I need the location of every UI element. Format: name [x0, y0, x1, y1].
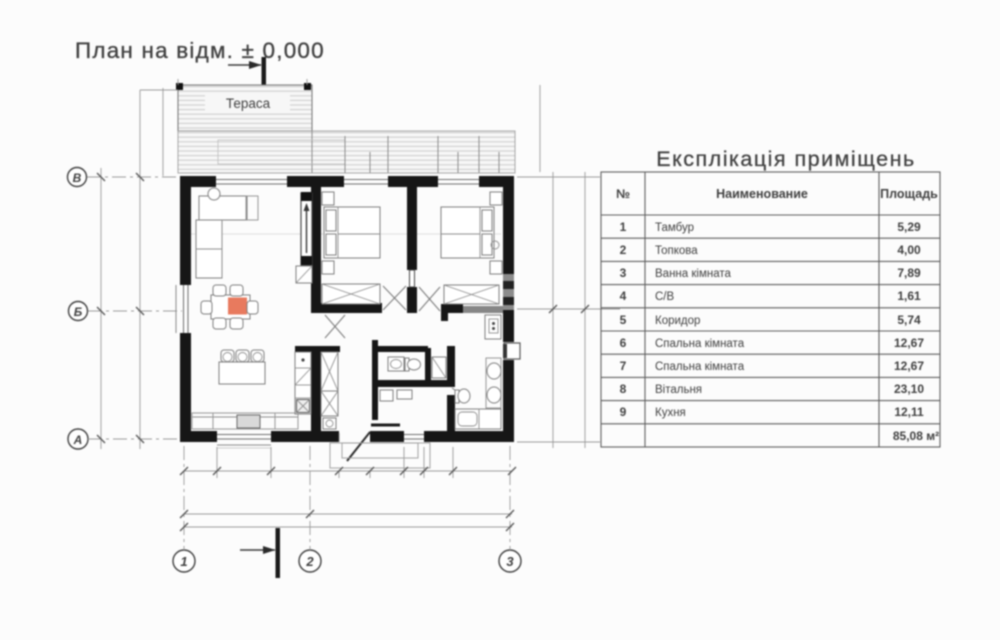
svg-text:Спальна кімната: Спальна кімната	[655, 338, 745, 350]
svg-text:7: 7	[620, 359, 627, 373]
svg-text:Спальна кімната: Спальна кімната	[655, 361, 745, 373]
svg-text:Тераса: Тераса	[226, 96, 271, 111]
svg-text:2: 2	[620, 243, 627, 257]
svg-text:5,29: 5,29	[897, 220, 921, 234]
svg-text:4,00: 4,00	[897, 243, 921, 257]
svg-text:8: 8	[620, 382, 627, 396]
svg-text:1: 1	[180, 554, 187, 569]
svg-text:Топкова: Топкова	[655, 245, 698, 257]
svg-text:Площадь: Площадь	[880, 187, 938, 201]
svg-text:6: 6	[620, 336, 627, 350]
svg-text:2: 2	[305, 554, 314, 569]
svg-text:Вітальня: Вітальня	[655, 384, 702, 396]
svg-text:№: №	[616, 187, 630, 201]
svg-text:1,61: 1,61	[897, 289, 921, 303]
svg-text:В: В	[73, 171, 82, 185]
svg-text:23,10: 23,10	[894, 382, 924, 396]
svg-text:Тамбур: Тамбур	[655, 222, 694, 234]
svg-text:Б: Б	[74, 305, 83, 319]
svg-text:Ванна кімната: Ванна кімната	[655, 268, 731, 280]
svg-text:1: 1	[620, 220, 627, 234]
svg-text:12,11: 12,11	[894, 405, 924, 419]
svg-text:Кухня: Кухня	[655, 407, 686, 419]
svg-text:С/В: С/В	[655, 291, 675, 303]
svg-text:85,08 м²: 85,08 м²	[893, 429, 939, 443]
svg-text:Наименование: Наименование	[716, 187, 808, 201]
svg-text:4: 4	[620, 289, 627, 303]
svg-text:9: 9	[620, 405, 627, 419]
svg-text:5: 5	[620, 313, 627, 327]
svg-text:7,89: 7,89	[897, 266, 921, 280]
svg-text:12,67: 12,67	[894, 336, 924, 350]
svg-text:Коридор: Коридор	[655, 315, 700, 327]
svg-text:5,74: 5,74	[897, 313, 921, 327]
svg-text:3: 3	[620, 266, 627, 280]
svg-text:12,67: 12,67	[894, 359, 924, 373]
svg-text:План на відм. ± 0,000: План на відм. ± 0,000	[75, 38, 325, 63]
svg-text:Експлікація приміщень: Експлікація приміщень	[656, 147, 915, 171]
svg-text:А: А	[73, 433, 83, 447]
svg-text:3: 3	[506, 554, 514, 569]
